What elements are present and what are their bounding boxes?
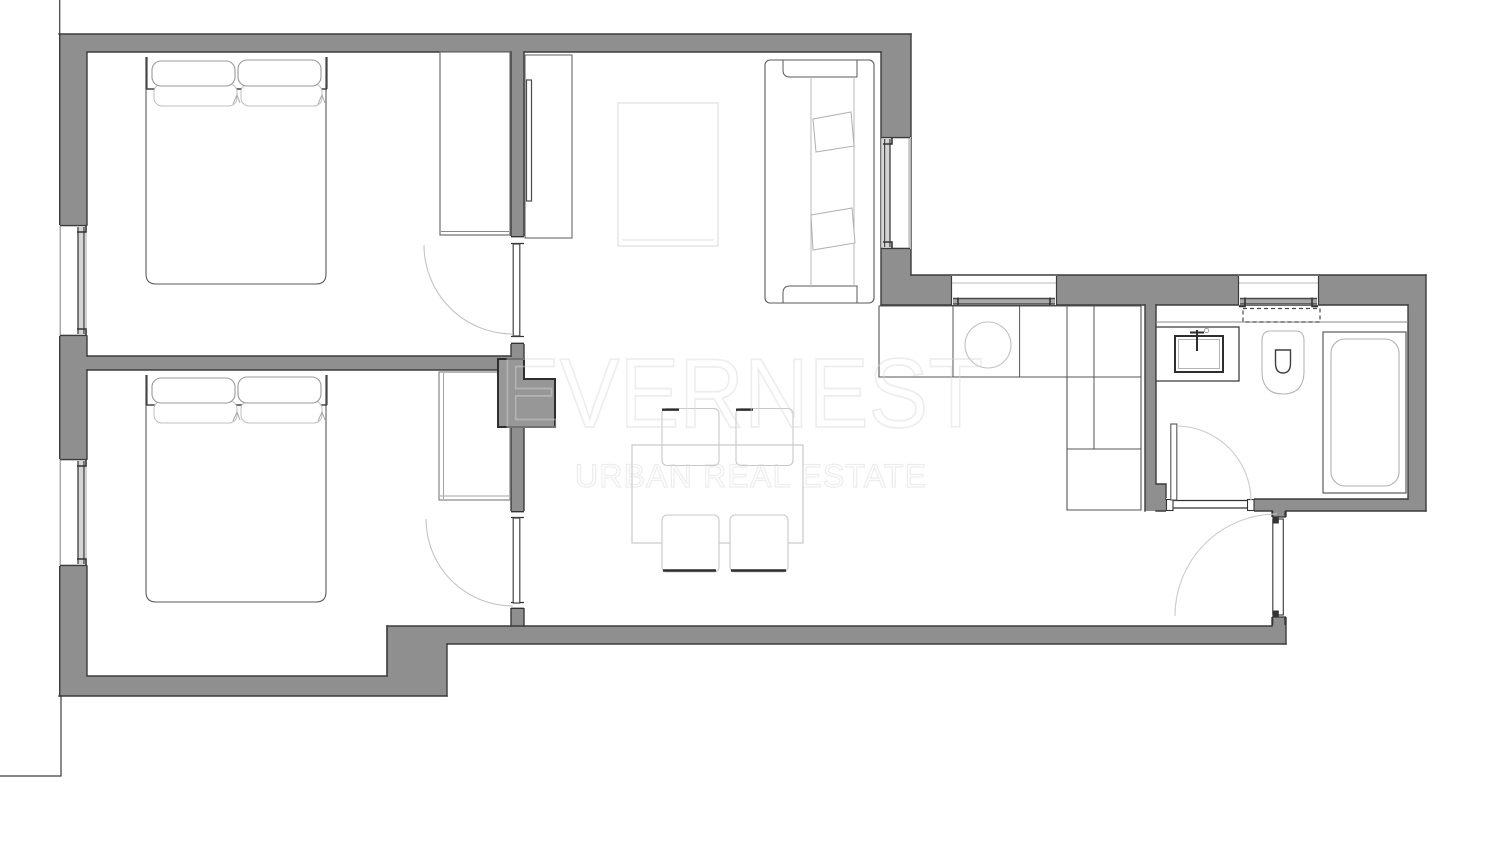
svg-text:EVERNEST: EVERNEST [500,338,983,448]
svg-text:URBAN REAL ESTATE: URBAN REAL ESTATE [575,458,927,494]
